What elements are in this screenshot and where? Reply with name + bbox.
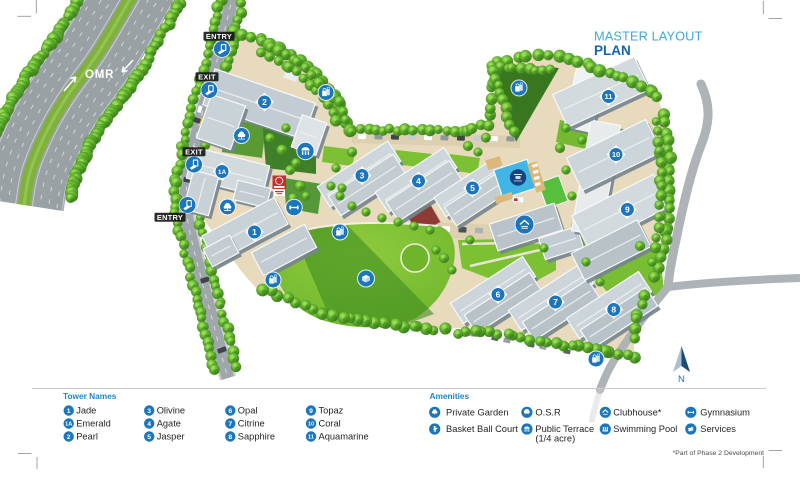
svg-text:Agate: Agate [157, 419, 181, 429]
svg-text:9: 9 [309, 408, 313, 415]
svg-text:11: 11 [308, 435, 314, 441]
svg-text:9: 9 [625, 205, 630, 215]
svg-text:6: 6 [496, 290, 501, 300]
svg-text:PLAN: PLAN [594, 43, 631, 58]
svg-text:2: 2 [262, 97, 267, 107]
svg-text:OMR: OMR [85, 69, 114, 81]
svg-text:*Part of Phase 2 Development: *Part of Phase 2 Development [673, 450, 765, 457]
svg-text:Jade: Jade [76, 406, 96, 416]
svg-text:3: 3 [360, 171, 365, 181]
svg-text:8: 8 [228, 434, 232, 441]
svg-text:2: 2 [67, 434, 71, 441]
svg-text:Emerald: Emerald [76, 419, 111, 429]
svg-text:Citrine: Citrine [238, 419, 265, 429]
svg-text:4: 4 [416, 176, 421, 186]
svg-text:3: 3 [147, 408, 151, 415]
svg-text:EXIT: EXIT [185, 148, 203, 157]
svg-text:Clubhouse*: Clubhouse* [613, 408, 661, 418]
svg-text:Sapphire: Sapphire [238, 432, 275, 442]
svg-text:7: 7 [228, 421, 232, 428]
svg-text:7: 7 [553, 297, 558, 307]
svg-text:Coral: Coral [319, 419, 341, 429]
svg-text:N: N [678, 374, 685, 385]
svg-text:10: 10 [308, 422, 314, 428]
svg-text:1: 1 [67, 408, 71, 415]
svg-text:11: 11 [605, 92, 613, 101]
svg-text:Aquamarine: Aquamarine [319, 432, 369, 442]
svg-text:4: 4 [147, 421, 151, 428]
svg-text:Olivine: Olivine [157, 406, 185, 416]
svg-text:ENTRY: ENTRY [157, 213, 183, 222]
svg-text:6: 6 [228, 408, 232, 415]
svg-text:Tower Names: Tower Names [63, 391, 117, 401]
svg-text:Swimming Pool: Swimming Pool [613, 424, 677, 434]
svg-text:1A: 1A [65, 422, 72, 428]
svg-text:Opal: Opal [238, 406, 258, 416]
svg-text:1: 1 [252, 227, 257, 237]
svg-text:8: 8 [611, 305, 616, 315]
svg-text:EXIT: EXIT [198, 73, 216, 82]
svg-text:Pearl: Pearl [76, 432, 98, 442]
svg-text:1A: 1A [218, 169, 227, 176]
svg-text:MASTER LAYOUT: MASTER LAYOUT [594, 29, 703, 44]
svg-text:Basket Ball Court: Basket Ball Court [446, 424, 518, 434]
svg-text:(1/4 acre): (1/4 acre) [535, 434, 575, 444]
svg-text:5: 5 [147, 434, 151, 441]
svg-text:Private Garden: Private Garden [446, 408, 509, 418]
svg-text:Amenities: Amenities [430, 391, 470, 401]
svg-text:ENTRY: ENTRY [206, 32, 232, 41]
svg-text:Jasper: Jasper [157, 432, 185, 442]
svg-text:5: 5 [470, 183, 475, 193]
svg-text:Topaz: Topaz [319, 406, 344, 416]
svg-text:10: 10 [612, 150, 620, 159]
svg-text:Gymnasium: Gymnasium [700, 408, 750, 418]
svg-text:O.S.R: O.S.R [535, 408, 561, 418]
svg-text:Services: Services [700, 424, 736, 434]
